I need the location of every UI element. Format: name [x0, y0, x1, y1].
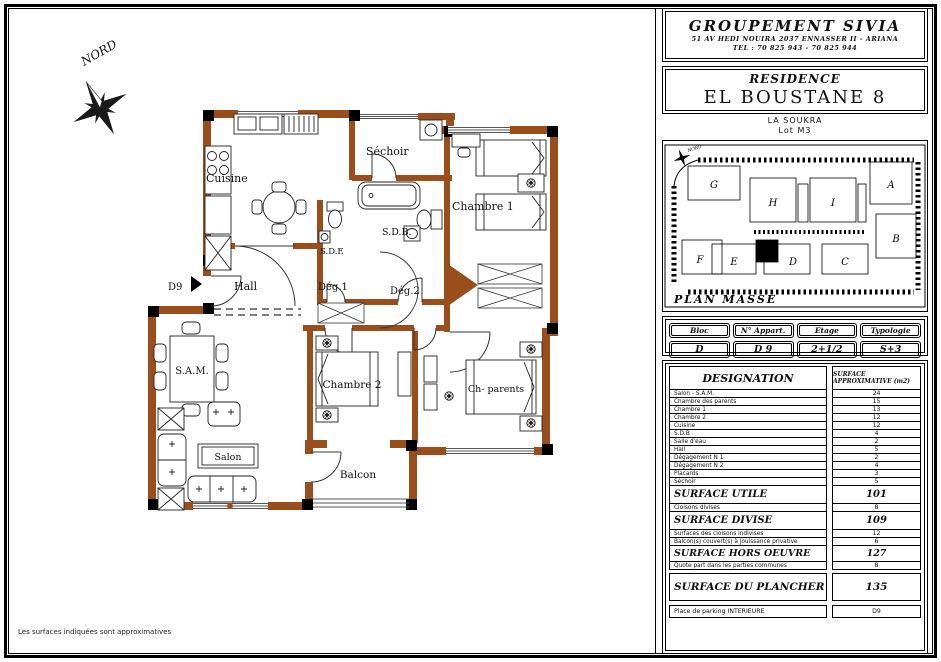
surface-table: DESIGNATION SURFACE APPROXIMATIVE (m2) S… — [665, 363, 925, 651]
room-label-salon: Salon — [214, 452, 241, 463]
plan-sheet: { "page": { "footer_note": "Les surfaces… — [0, 0, 941, 662]
table-row: Quote part dans les parties communes8 — [669, 561, 921, 570]
lot-number: Lot M3 — [662, 126, 928, 136]
footer-note: Les surfaces indiquées sont approximativ… — [18, 628, 171, 636]
company-name: GROUPEMENT SIVIA — [689, 18, 901, 35]
site-block-f: F — [696, 255, 705, 266]
open-passage-dashes — [214, 309, 301, 315]
room-label-cuisine: Cuisine — [206, 172, 248, 185]
company-phone: TEL : 70 825 943 - 70 825 944 — [733, 44, 857, 53]
surface-hors-oeuvre-row: SURFACE HORS OEUVRE127 — [669, 545, 921, 562]
room-label-chambre1: Chambre 1 — [452, 200, 514, 213]
unit-value-appart: D 9 — [733, 341, 794, 358]
site-block-h: H — [768, 198, 778, 209]
site-plan-drawing: G H I A B C D E F NORD PLAN MASSE — [664, 142, 926, 310]
entrance-label: D9 — [168, 282, 182, 293]
parking-row: Place de parking INTERIEURED9 — [669, 605, 921, 618]
closets — [318, 264, 542, 323]
location-block: LA SOUKRA Lot M3 — [662, 116, 928, 138]
site-block-b: B — [891, 234, 899, 245]
residence-label: RESIDENCE — [749, 72, 841, 87]
highlighted-block-d — [756, 240, 778, 262]
unit-header-appart: N° Appart. — [733, 323, 794, 338]
room-label-sam: S.A.M. — [175, 366, 209, 377]
site-plan-box: G H I A B C D E F NORD PLAN MASSE — [662, 140, 928, 312]
room-label-hall: Hall — [234, 280, 258, 293]
table-header-row: DESIGNATION SURFACE APPROXIMATIVE (m2) — [669, 366, 921, 390]
unit-value-etage: 2+1/2 — [797, 341, 858, 358]
header-designation: DESIGNATION — [669, 366, 827, 390]
room-label-deg2: Dég.2 — [390, 286, 420, 297]
unit-value-typologie: S+3 — [860, 341, 921, 358]
room-label-sdb: S.D.B. — [382, 227, 412, 238]
surface-plancher-row: SURFACE DU PLANCHER135 — [669, 573, 921, 601]
header-surface: SURFACE APPROXIMATIVE (m2) — [832, 366, 921, 390]
room-label-balcon: Balcon — [340, 469, 377, 481]
surface-divise-row: SURFACE DIVISE109 — [669, 511, 921, 530]
surface-utile-row: SURFACE UTILE101 — [669, 485, 921, 504]
site-block-e: E — [729, 257, 738, 268]
unit-header-bloc: Bloc — [669, 323, 730, 338]
company-address: 51 AV HEDI NOUIRA 2037 ENNASSER II - ARI… — [692, 35, 899, 44]
title-block-panel: GROUPEMENT SIVIA 51 AV HEDI NOUIRA 2037 … — [659, 8, 933, 654]
room-label-sde: S.D.E — [320, 247, 344, 257]
location-name: LA SOUKRA — [662, 116, 928, 126]
compass-north-label: NORD — [78, 37, 120, 69]
residence-box: RESIDENCE EL BOUSTANE 8 — [662, 66, 928, 114]
site-block-a: A — [886, 180, 894, 191]
site-block-c: C — [841, 257, 849, 268]
unit-info-box: Bloc N° Appart. Etage Typologie D D 9 2+… — [662, 316, 928, 356]
entrance-arrow — [191, 276, 202, 292]
room-label-deg1: Dég.1 — [318, 282, 348, 293]
residence-name: EL BOUSTANE 8 — [704, 87, 887, 108]
company-box: GROUPEMENT SIVIA 51 AV HEDI NOUIRA 2037 … — [662, 8, 928, 62]
unit-value-bloc: D — [669, 341, 730, 358]
unit-header-etage: Etage — [797, 323, 858, 338]
room-label-chparents: Ch- parents — [468, 384, 524, 395]
surface-table-box: DESIGNATION SURFACE APPROXIMATIVE (m2) S… — [662, 360, 928, 654]
site-block-d: D — [788, 257, 797, 268]
unit-header-typologie: Typologie — [860, 323, 921, 338]
site-block-g: G — [710, 180, 718, 191]
compass-rose: NORD — [59, 37, 140, 149]
site-plan-title: PLAN MASSE — [673, 293, 777, 306]
room-label-sechoir: Séchoir — [366, 145, 409, 158]
room-label-chambre2: Chambre 2 — [323, 379, 382, 391]
